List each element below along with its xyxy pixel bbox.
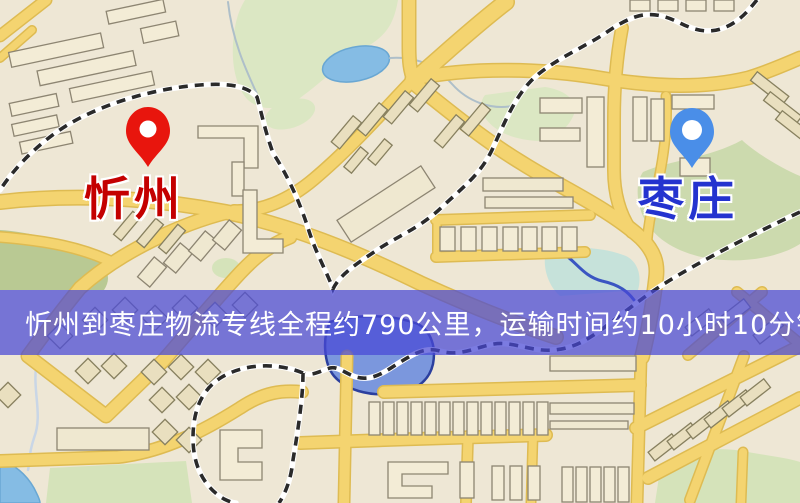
destination-city-label: 枣庄: [638, 176, 738, 222]
route-info-text: 忻州到枣庄物流专线全程约790公里，运输时间约10小时10分钟.: [25, 303, 800, 342]
route-info-banner: 忻州到枣庄物流专线全程约790公里，运输时间约10小时10分钟.: [0, 290, 800, 355]
map-canvas[interactable]: 忻州 枣庄 忻州到枣庄物流专线全程约790公里，运输时间约10小时10分钟.: [0, 0, 800, 503]
origin-city-label: 忻州: [84, 176, 184, 222]
map-image: [0, 0, 800, 503]
